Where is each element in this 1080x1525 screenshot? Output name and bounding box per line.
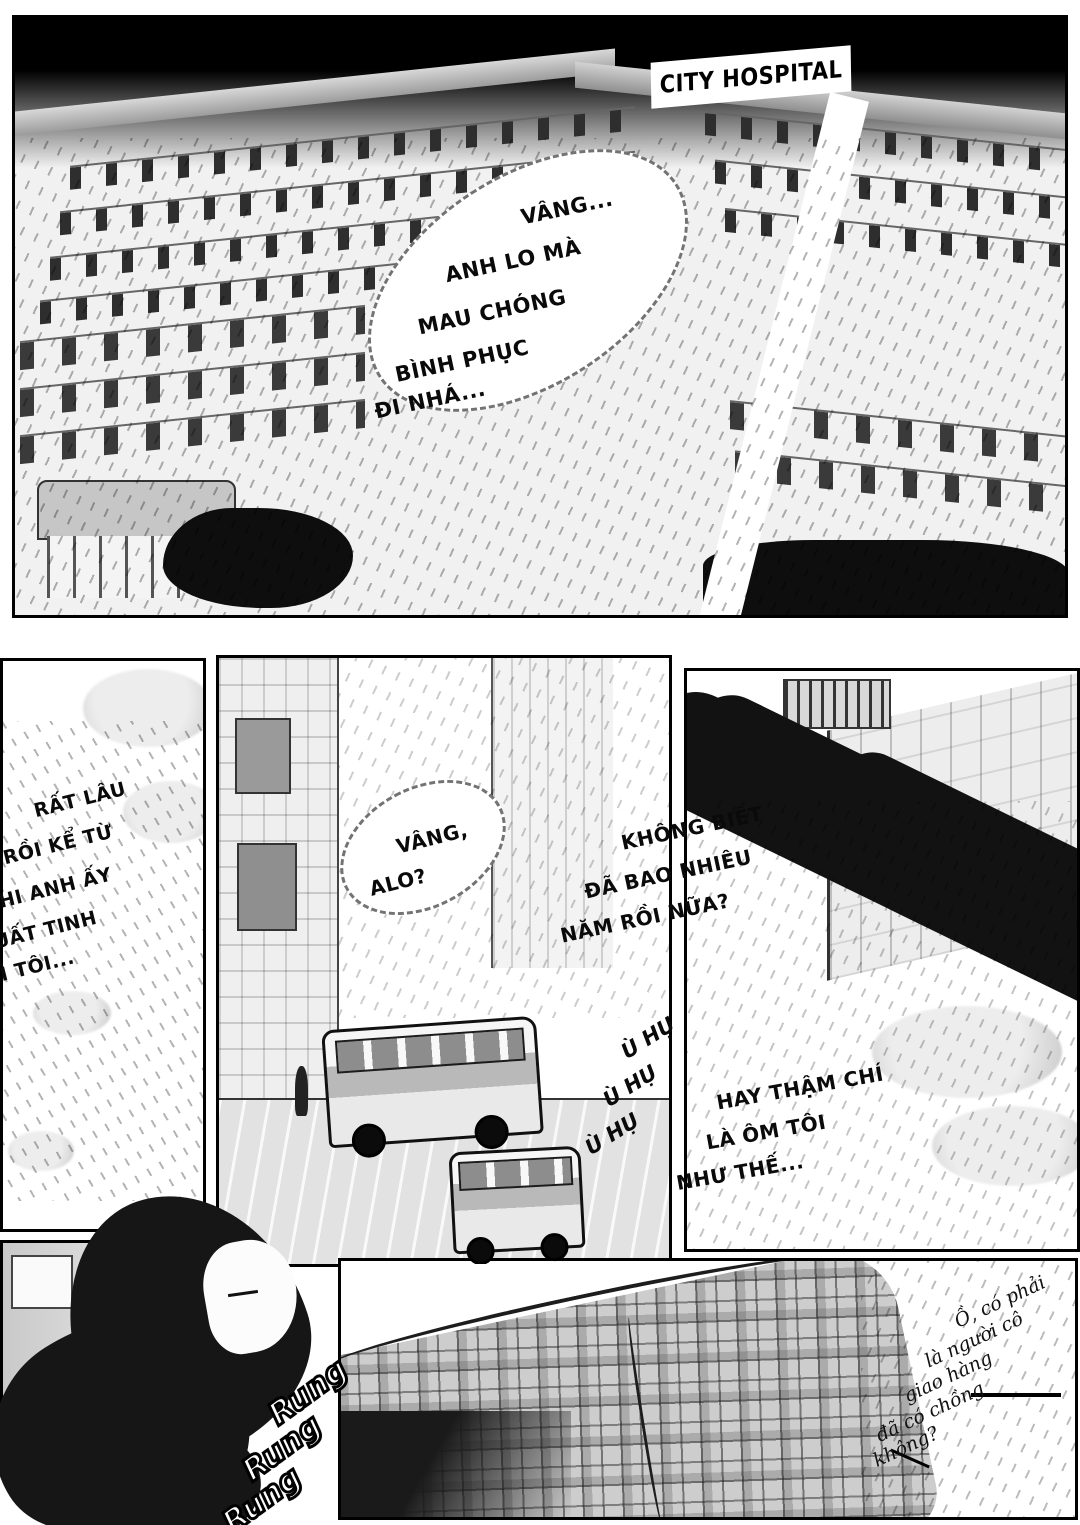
pedestrian-figure (295, 1066, 308, 1116)
window-strip (735, 450, 1068, 514)
hospital-sign-text: CITY HOSPITAL (659, 55, 842, 99)
window-strip (725, 208, 1068, 268)
jeans-shadow (341, 1411, 571, 1520)
hedge-left (163, 508, 353, 608)
cloud (872, 1006, 1062, 1098)
bus-windows (458, 1156, 573, 1191)
balcony-railing (783, 679, 891, 729)
hedge-right (703, 540, 1068, 618)
window-strip (715, 160, 1067, 221)
wall-window (11, 1255, 73, 1309)
bus-front (321, 1016, 544, 1149)
cloud (8, 1131, 74, 1171)
bus-rear (448, 1146, 585, 1255)
panel-street (216, 655, 672, 1267)
cloud (83, 669, 206, 747)
manga-page: CITY HOSPITAL VÂNG... ANH LO MÀ MAU CHÓN… (0, 0, 1080, 1525)
building-window (237, 843, 297, 931)
cloud (123, 781, 206, 843)
building-window (235, 718, 291, 794)
bus-windows (335, 1027, 525, 1074)
cloud (33, 991, 111, 1035)
cloud (932, 1106, 1080, 1186)
